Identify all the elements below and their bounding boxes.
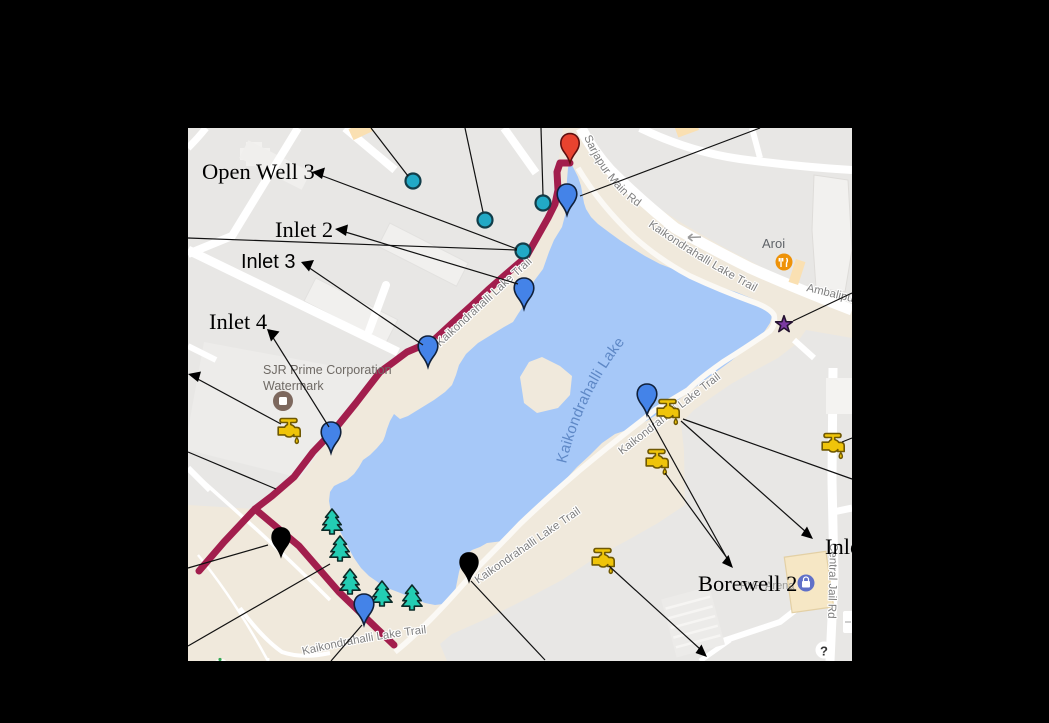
svg-text:Inlet 3: Inlet 3 — [241, 251, 295, 273]
svg-text:?: ? — [820, 644, 828, 659]
svg-text:Inlet 1: Inlet 1 — [825, 534, 883, 559]
svg-text:Inlet 4: Inlet 4 — [209, 309, 267, 334]
svg-text:Open Well 3: Open Well 3 — [202, 159, 315, 184]
svg-text:Watermark: Watermark — [263, 379, 324, 393]
svg-text:Borewell 2: Borewell 2 — [698, 571, 797, 596]
svg-text:SJR Prime Corporation: SJR Prime Corporation — [263, 363, 392, 377]
svg-text:Aroi: Aroi — [762, 236, 785, 251]
svg-text:Inlet 2: Inlet 2 — [275, 217, 333, 242]
